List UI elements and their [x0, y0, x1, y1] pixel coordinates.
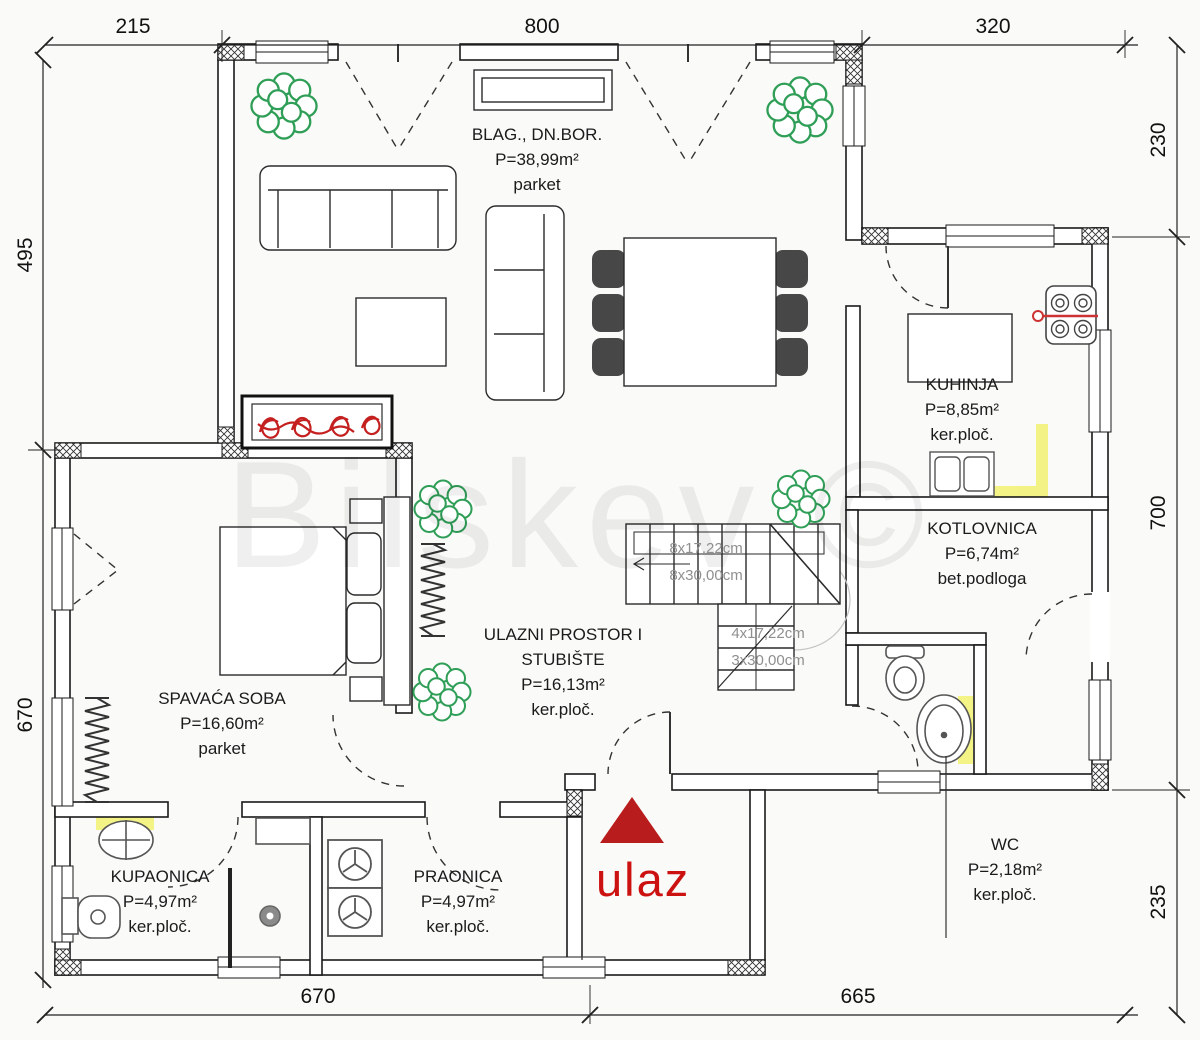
washing-machine-icon [328, 888, 382, 936]
dim-left-1: 495 [14, 237, 38, 272]
room-area: P=8,85m² [925, 397, 999, 422]
room-name: PRAONICA [414, 864, 503, 889]
dim-top-3: 320 [975, 15, 1010, 39]
fireplace [242, 396, 392, 448]
washing-machine-icon [328, 840, 382, 888]
room-floor: ker.ploč. [414, 914, 503, 939]
stair-spec-line: 3x30,00cm [731, 647, 804, 674]
headboard [384, 497, 410, 705]
room-area: P=16,60m² [158, 711, 286, 736]
nightstand [350, 677, 382, 701]
room-floor: ker.ploč. [968, 882, 1042, 907]
dim-top-2: 800 [524, 15, 559, 39]
dim-top-1: 215 [115, 15, 150, 39]
room-floor: bet.podloga [927, 566, 1037, 591]
sideboard [474, 70, 612, 110]
toilet-icon [886, 646, 924, 700]
room-area: P=6,74m² [927, 541, 1037, 566]
room-label-boiler: KOTLOVNICA P=6,74m² bet.podloga [927, 516, 1037, 591]
coffee-table [356, 298, 446, 366]
tree-icon [251, 73, 316, 138]
chaise-sofa [486, 206, 564, 400]
floor-plan: Bilskev © BLAG., DN.BOR. P=38,99m² parke… [0, 0, 1200, 1040]
room-floor: ker.ploč. [111, 914, 210, 939]
room-floor: parket [472, 172, 602, 197]
room-floor: parket [158, 736, 286, 761]
dim-bottom-1: 670 [300, 985, 335, 1009]
stair-spec-upper: 8x17,22cm 8x30,00cm [669, 535, 742, 589]
tree-icon [414, 480, 471, 537]
room-floor: ker.ploč. [484, 697, 642, 722]
stair-spec-lower: 4x17,22cm 3x30,00cm [731, 620, 804, 674]
sink-icon [99, 820, 153, 860]
room-name: SPAVAĆA SOBA [158, 686, 286, 711]
room-area: P=38,99m² [472, 147, 602, 172]
room-area: P=16,13m² [484, 672, 642, 697]
stair-spec-line: 8x17,22cm [669, 535, 742, 562]
dim-right-1: 230 [1147, 122, 1171, 157]
dim-right-2: 700 [1147, 495, 1171, 530]
room-area: P=2,18m² [968, 857, 1042, 882]
room-label-bathroom: KUPAONICA P=4,97m² ker.ploč. [111, 864, 210, 939]
dim-left-2: 670 [14, 697, 38, 732]
room-name: STUBIŠTE [484, 647, 642, 672]
room-floor: ker.ploč. [925, 422, 999, 447]
room-area: P=4,97m² [414, 889, 503, 914]
dim-right-3: 235 [1147, 884, 1171, 919]
tree-icon [772, 470, 829, 527]
room-label-living: BLAG., DN.BOR. P=38,99m² parket [472, 122, 602, 197]
stair-spec-line: 4x17,22cm [731, 620, 804, 647]
laundry-fixtures [328, 840, 382, 936]
shower-drain-icon [260, 906, 280, 926]
sofa [260, 166, 456, 250]
room-label-bedroom: SPAVAĆA SOBA P=16,60m² parket [158, 686, 286, 761]
room-name: ULAZNI PROSTOR I [484, 622, 642, 647]
room-area: P=4,97m² [111, 889, 210, 914]
entrance-label: ulaz [596, 852, 690, 907]
room-label-laundry: PRAONICA P=4,97m² ker.ploč. [414, 864, 503, 939]
room-name: KOTLOVNICA [927, 516, 1037, 541]
stair-spec-line: 8x30,00cm [669, 562, 742, 589]
room-name: KUHINJA [925, 372, 999, 397]
room-name: BLAG., DN.BOR. [472, 122, 602, 147]
room-name: KUPAONICA [111, 864, 210, 889]
dim-bottom-2: 665 [840, 985, 875, 1009]
room-label-hall: ULAZNI PROSTOR I STUBIŠTE P=16,13m² ker.… [484, 622, 642, 722]
room-label-kitchen: KUHINJA P=8,85m² ker.ploč. [925, 372, 999, 447]
dining-set [592, 238, 808, 386]
tree-icon [413, 663, 470, 720]
kitchen-sink-icon [930, 452, 994, 496]
tree-icon [767, 77, 832, 142]
room-label-wc: WC P=2,18m² ker.ploč. [968, 832, 1042, 907]
nightstand [350, 499, 382, 523]
washbasin-icon [917, 695, 971, 763]
shelf [256, 818, 310, 844]
room-name: WC [968, 832, 1042, 857]
